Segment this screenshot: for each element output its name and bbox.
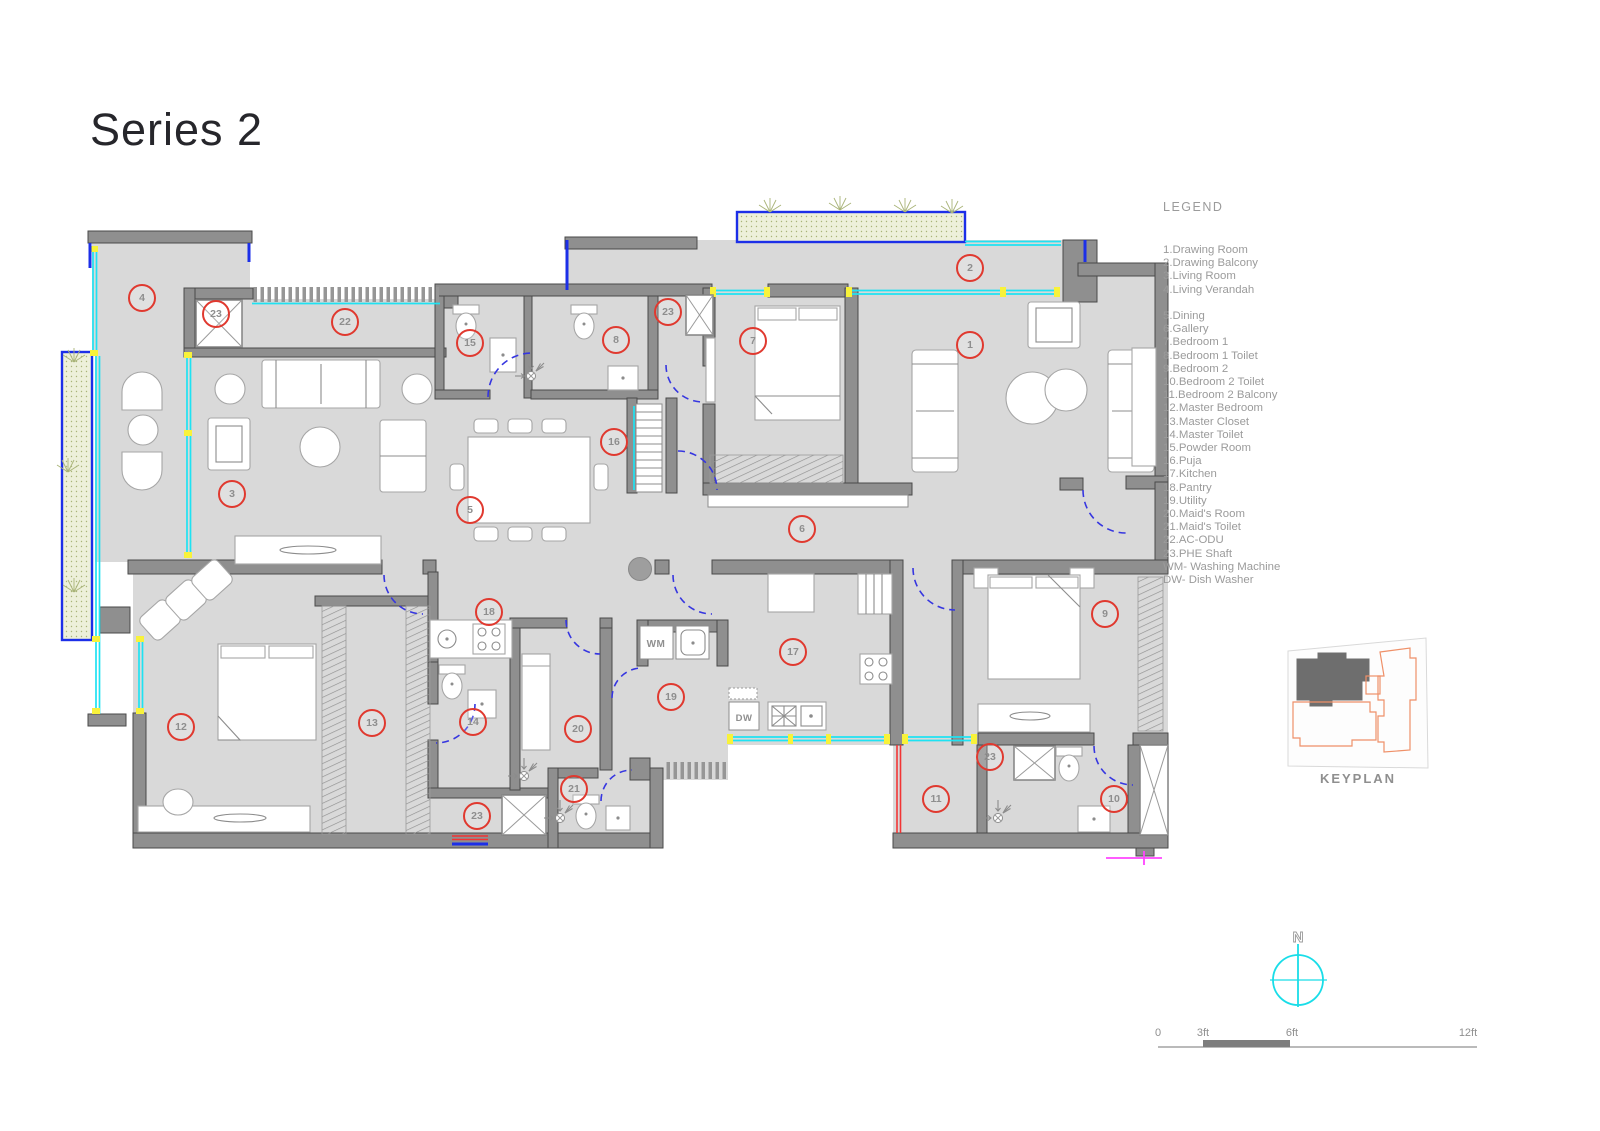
legend-item: 14.Master Toilet <box>1163 429 1383 442</box>
scale-label-3ft: 3ft <box>1197 1027 1209 1039</box>
legend-item: 9.Bedroom 2 <box>1163 363 1383 376</box>
scale-label-0: 0 <box>1155 1027 1161 1039</box>
legend-item: 20.Maid's Room <box>1163 508 1383 521</box>
legend-list: 1.Drawing Room2.Drawing Balcony3.Living … <box>1163 244 1383 587</box>
legend-item: 3.Living Room <box>1163 270 1383 283</box>
washing-machine-label: WM <box>647 639 666 650</box>
scale-bar: 0 3ft 6ft 12ft <box>1155 1027 1477 1047</box>
legend-spacer <box>1163 297 1383 310</box>
north-arrow: N <box>1270 929 1327 1007</box>
legend-item: 6.Gallery <box>1163 323 1383 336</box>
legend-item: 2.Drawing Balcony <box>1163 257 1383 270</box>
legend-item: 17.Kitchen <box>1163 468 1383 481</box>
scale-label-12ft: 12ft <box>1459 1027 1477 1039</box>
legend-item: 18.Pantry <box>1163 482 1383 495</box>
north-label: N <box>1293 929 1304 946</box>
legend-item: WM- Washing Machine <box>1163 561 1383 574</box>
legend-item: 4.Living Verandah <box>1163 284 1383 297</box>
legend-item: 13.Master Closet <box>1163 416 1383 429</box>
legend-item: 19.Utility <box>1163 495 1383 508</box>
legend: LEGEND 1.Drawing Room2.Drawing Balcony3.… <box>1163 200 1383 587</box>
legend-item: 10.Bedroom 2 Toilet <box>1163 376 1383 389</box>
legend-item: 11.Bedroom 2 Balcony <box>1163 389 1383 402</box>
legend-item: 7.Bedroom 1 <box>1163 336 1383 349</box>
floor-plan-sheet: Series 2 <box>0 0 1600 1131</box>
legend-item: 15.Powder Room <box>1163 442 1383 455</box>
legend-item: 16.Puja <box>1163 455 1383 468</box>
legend-item: 22.AC-ODU <box>1163 534 1383 547</box>
scale-label-6ft: 6ft <box>1286 1027 1298 1039</box>
keyplan-label: KEYPLAN <box>1320 771 1396 786</box>
legend-item: 21.Maid's Toilet <box>1163 521 1383 534</box>
legend-item: DW- Dish Washer <box>1163 574 1383 587</box>
legend-item: 12.Master Bedroom <box>1163 402 1383 415</box>
legend-title: LEGEND <box>1163 200 1383 214</box>
legend-item: 23.PHE Shaft <box>1163 548 1383 561</box>
keyplan-current-unit <box>1297 653 1369 706</box>
legend-item: 8.Bedroom 1 Toilet <box>1163 350 1383 363</box>
puja-unit <box>636 404 662 492</box>
legend-item: 5.Dining <box>1163 310 1383 323</box>
dish-washer-label: DW <box>736 713 753 724</box>
keyplan: KEYPLAN <box>1288 638 1428 786</box>
legend-item: 1.Drawing Room <box>1163 244 1383 257</box>
